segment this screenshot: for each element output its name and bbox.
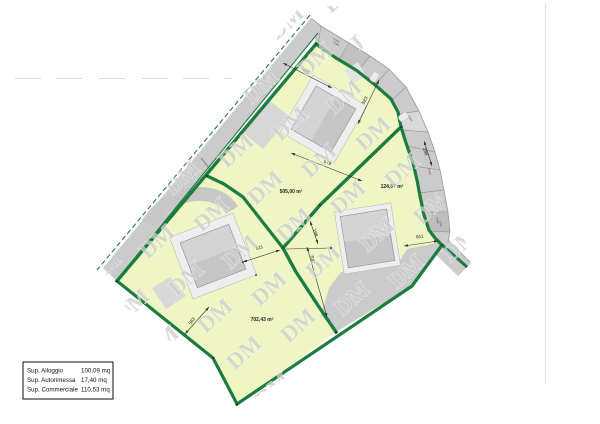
svg-text:702,43 m²: 702,43 m² [251,317,274,323]
svg-text:17,40 mq: 17,40 mq [81,377,107,384]
svg-text:110,53 mq: 110,53 mq [81,387,110,394]
svg-text:Sup. Commerciale: Sup. Commerciale [27,387,78,394]
svg-text:100,09 mq: 100,09 mq [81,368,111,375]
svg-text:611: 611 [416,233,424,239]
svg-text:Sup. Autorimessa: Sup. Autorimessa [27,377,76,384]
svg-text:505,00 m²: 505,00 m² [280,189,303,195]
svg-text:Sup. Alloggio: Sup. Alloggio [27,368,64,375]
